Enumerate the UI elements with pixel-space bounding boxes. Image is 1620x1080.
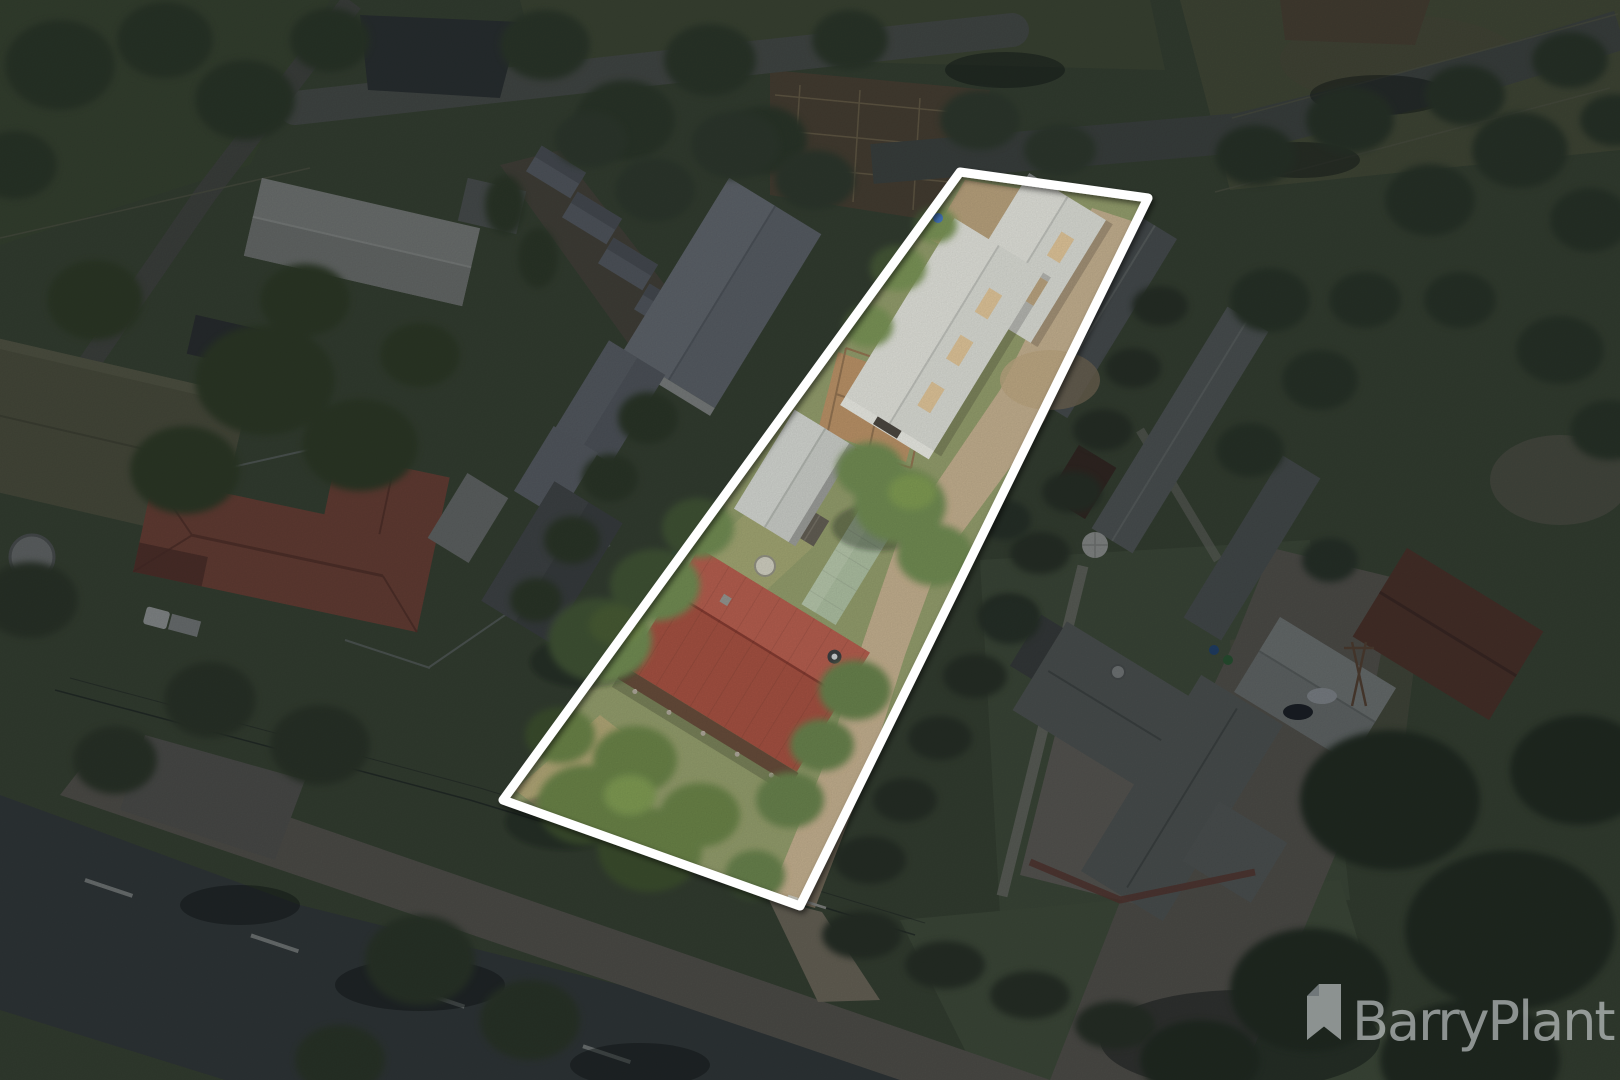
aerial-photo: BarryPlant bbox=[0, 0, 1620, 1080]
watermark-text: BarryPlant bbox=[1352, 990, 1614, 1053]
barry-plant-watermark: BarryPlant bbox=[1307, 984, 1614, 1053]
